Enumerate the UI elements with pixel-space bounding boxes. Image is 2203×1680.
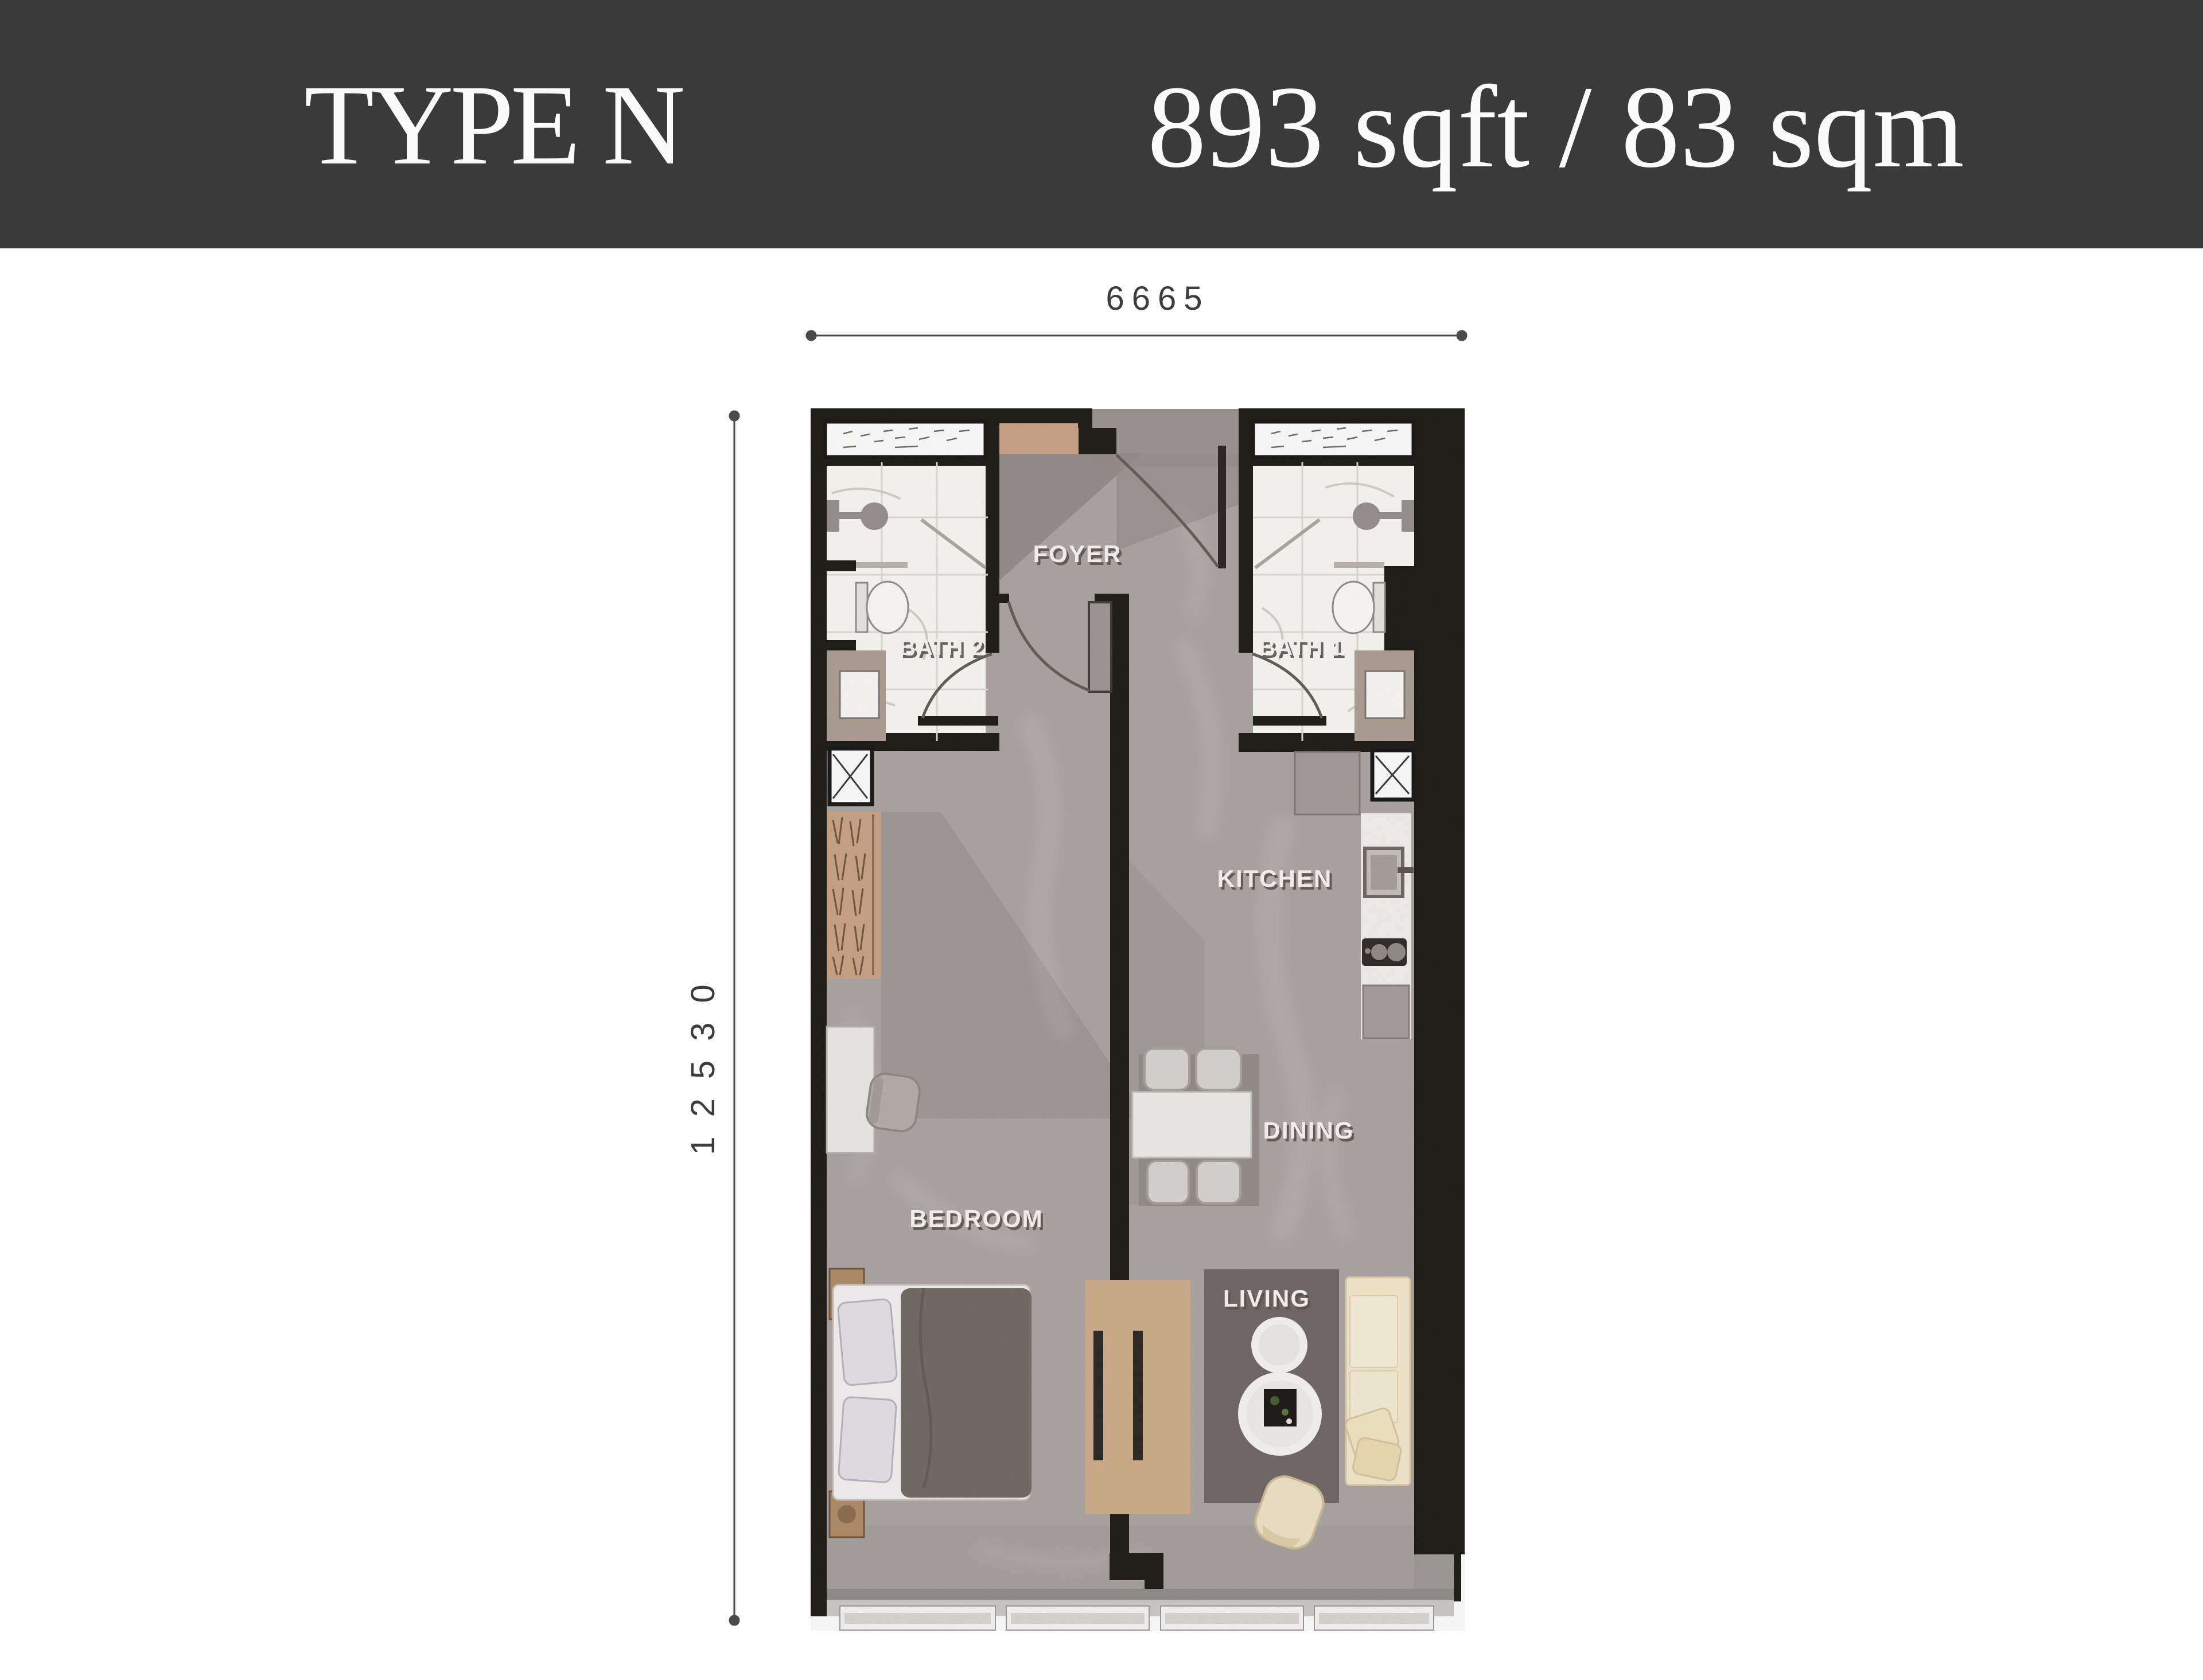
svg-text:TYPE N: TYPE N xyxy=(304,62,683,189)
svg-text:12530: 12530 xyxy=(684,965,722,1155)
svg-text:893 sqft / 83 sqm: 893 sqft / 83 sqm xyxy=(1147,62,1964,192)
svg-text:6665: 6665 xyxy=(1106,280,1209,317)
